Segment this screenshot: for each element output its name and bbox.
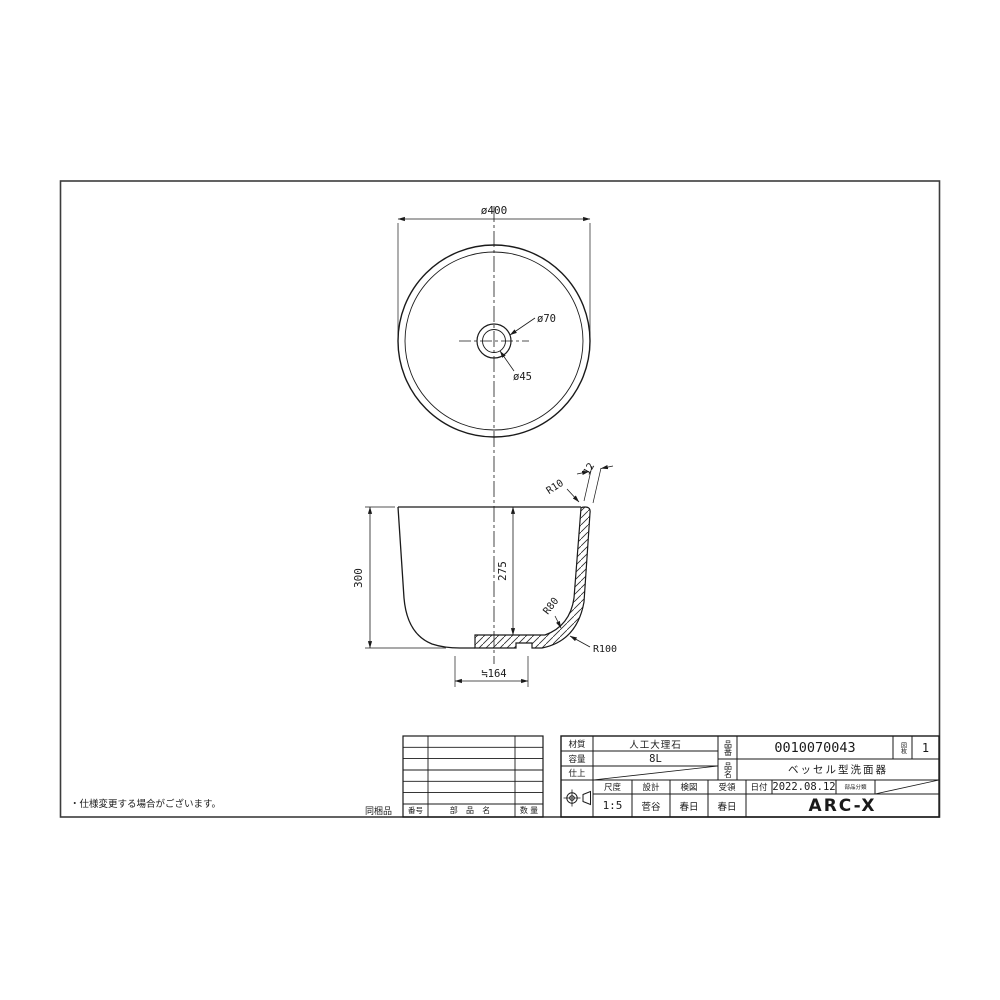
top-view: ø400 ø70 ø45 — [398, 204, 590, 664]
section-cut-wall — [475, 507, 590, 648]
dim-depth: 275 — [496, 561, 509, 581]
scale-value: 1:5 — [593, 794, 632, 817]
scale-label: 尺度 — [593, 780, 632, 794]
design-value: 菅谷 — [632, 794, 670, 817]
receipt-label: 受領 — [708, 780, 746, 794]
dim-height: 300 — [352, 568, 365, 588]
dim-drain-outer: ø70 — [537, 313, 556, 325]
check-value: 春日 — [670, 794, 708, 817]
spec-change-note: ・仕様変更する場合がございます。 — [70, 796, 221, 810]
projection-symbol-icon — [564, 790, 591, 807]
category-label: 部品分類 — [836, 780, 875, 794]
bundled-items-label: 同梱品 — [356, 804, 401, 817]
check-label: 検図 — [670, 780, 708, 794]
leader-r80 — [555, 616, 561, 628]
dim-r80: R80 — [541, 596, 561, 617]
capacity-label: 容量 — [561, 751, 593, 766]
thickness-arrow-right — [601, 466, 613, 469]
date-value: 2022.08.12 — [772, 780, 836, 794]
drawing-canvas: ø400 ø70 ø45 300 275 ≒164 12 R1 — [0, 0, 1000, 1000]
capacity-value: 8L — [593, 751, 718, 766]
parts-col-number: 番号 — [403, 804, 428, 817]
company-logo: ARC-X — [746, 794, 939, 817]
dim-wall-thickness: 12 — [582, 461, 598, 477]
sheets-label: 図枚 — [893, 736, 912, 759]
sheet-border — [61, 181, 940, 817]
dim-drain-inner: ø45 — [513, 371, 532, 383]
dim-outer-diameter: ø400 — [481, 204, 508, 217]
dim-r10: R10 — [545, 478, 566, 497]
section-left-profile — [398, 507, 475, 648]
finish-diagonal — [593, 766, 718, 780]
leader-drain-inner — [500, 351, 514, 371]
part-no-value: 0010070043 — [737, 736, 893, 759]
leader-r100 — [570, 636, 590, 647]
extension-line — [593, 468, 601, 503]
receipt-value: 春日 — [708, 794, 746, 817]
design-label: 設計 — [632, 780, 670, 794]
date-label: 日付 — [746, 780, 772, 794]
leader-r10 — [567, 489, 579, 502]
product-name-value: ベッセル型洗面器 — [737, 759, 939, 780]
dim-bottom-width: ≒164 — [481, 668, 506, 680]
parts-col-name: 部 品 名 — [428, 804, 515, 817]
sheets-value: 1 — [912, 736, 939, 759]
material-value: 人工大理石 — [593, 736, 718, 751]
product-name-label: 品名 — [718, 759, 737, 780]
category-diagonal — [875, 780, 939, 794]
dim-r100: R100 — [593, 644, 617, 655]
part-no-label: 品番 — [718, 736, 737, 759]
material-label: 材質 — [561, 736, 593, 751]
parts-col-qty: 数 量 — [515, 804, 543, 817]
finish-label: 仕上 — [561, 766, 593, 780]
leader-drain-outer — [510, 318, 535, 335]
section-view: 300 275 ≒164 12 R10 R80 R100 — [352, 461, 617, 687]
